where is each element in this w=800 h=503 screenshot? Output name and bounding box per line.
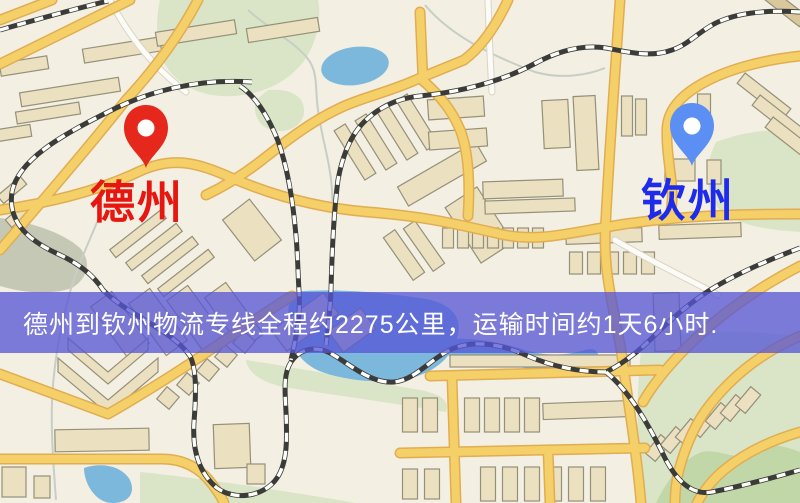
origin-pin-hole [138, 120, 155, 137]
map-canvas: 德州 钦州 [0, 0, 800, 503]
destination-label: 钦州 [641, 176, 735, 226]
logistics-map: 德州 钦州 德州到钦州物流专线全程约2275公里，运输时间约1天6小时. [0, 0, 800, 503]
info-banner: 德州到钦州物流专线全程约2275公里，运输时间约1天6小时. [0, 292, 800, 353]
destination-pin-hole [684, 118, 701, 135]
banner-text: 德州到钦州物流专线全程约2275公里，运输时间约1天6小时. [23, 305, 718, 341]
origin-label: 德州 [90, 178, 184, 228]
